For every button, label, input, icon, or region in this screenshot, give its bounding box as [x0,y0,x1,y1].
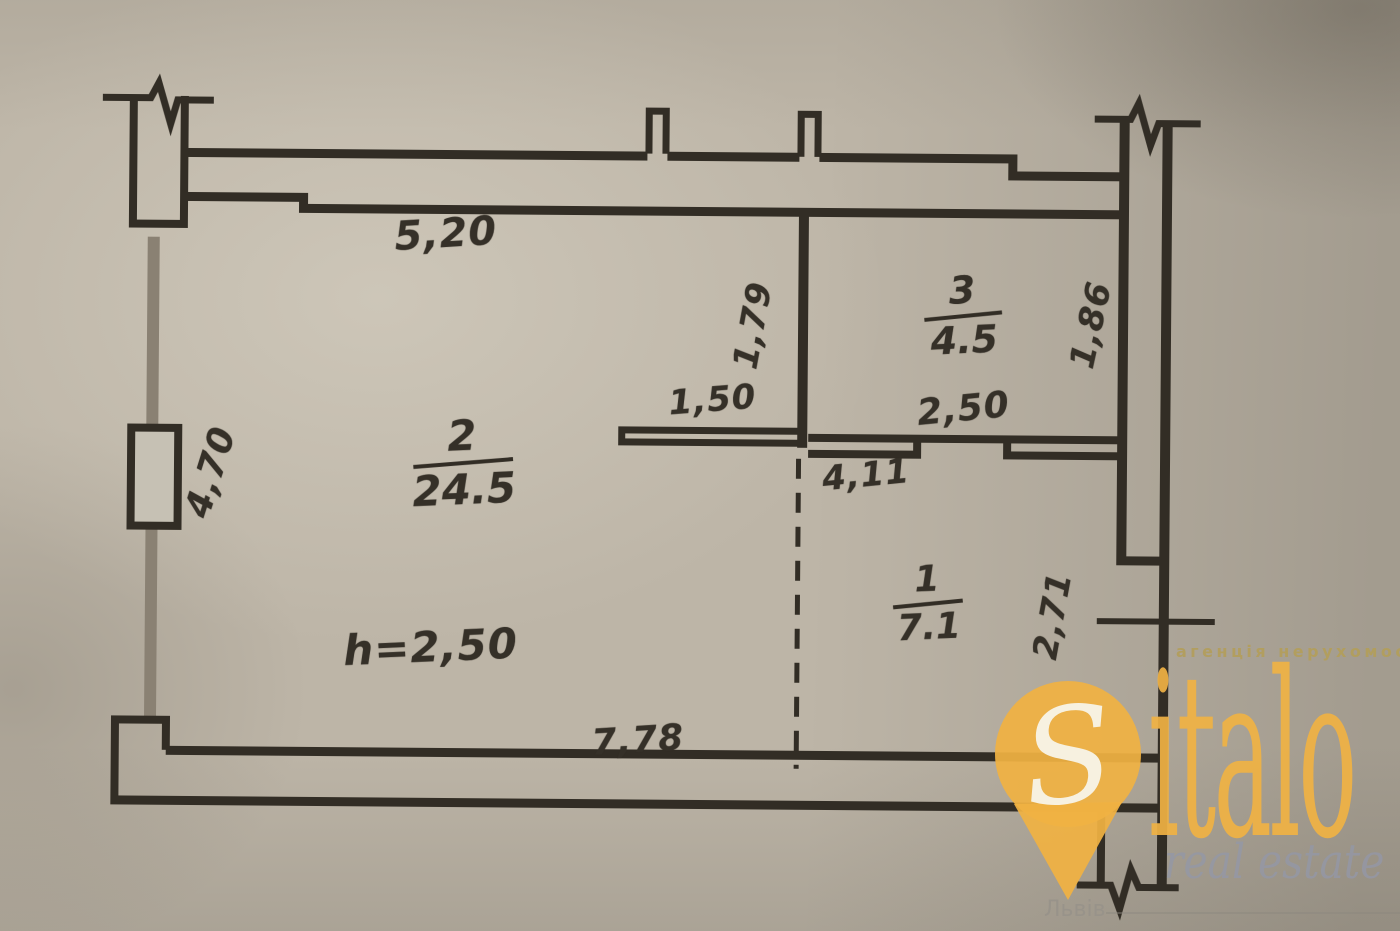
dim-corridor-width: 4,11 [820,451,911,499]
wall-top-outer-right [1010,171,1129,181]
door-jamb-right [1003,435,1011,459]
room-label-1: 1 7.1 [891,559,965,648]
wall-break-symbol-top-left [101,79,219,132]
wall-bottom-left-outer [110,715,119,803]
dim-shelf-width: 1,50 [667,377,758,424]
room-3-area: 4.5 [924,319,1004,362]
watermark-brand-initial: S [1015,676,1121,838]
room-1-number: 1 [891,559,963,600]
scanned-floor-plan-photo: 5,20 1,50 2,50 4,11 7,78 h=2,50 1,79 1,8… [0,0,1400,931]
wall-top-outer-a [185,148,647,161]
watermark-underline [1106,912,1400,914]
room-label-3: 3 4.5 [922,269,1004,362]
wall-break-symbol-top-right [1092,99,1204,152]
dim-left-height: 4,70 [177,422,244,523]
wall-right-inner [1116,121,1129,565]
wall-tick-1 [645,108,669,154]
room-2-area: 24.5 [411,466,516,515]
wall-top-inner-a [185,192,307,202]
dashed-zone-line [794,459,801,769]
dim-right-lower-height: 2,71 [1025,569,1080,663]
room-label-2: 2 24.5 [409,412,517,515]
window-left [126,424,182,530]
wall-top-outer-c [819,153,1014,164]
dim-bottom-width: 7,78 [590,717,685,764]
wall-room3-bottom-upper [808,434,1120,444]
ceiling-height-note: h=2,50 [342,619,519,676]
room-1-area: 7.1 [893,607,965,648]
room-3-number: 3 [922,269,1002,312]
wall-room3-bottom-lower-right [1003,451,1120,460]
watermark-subtitle: real estate [1164,838,1384,886]
wall-tick-2 [797,111,821,157]
watermark-city: Львів [1044,897,1106,922]
wall-partition-rooms-2-3 [797,208,809,448]
wall-top-outer-b [667,152,799,162]
map-pin-icon: S [988,676,1150,916]
dim-room3-width: 2,50 [915,384,1011,434]
half-wall-shelf [618,426,800,446]
dim-partition-height: 1,79 [725,279,780,373]
dim-top-width: 5,20 [393,208,498,260]
dim-room3-depth: 1,86 [1062,278,1120,372]
room-2-number: 2 [409,412,514,461]
door-jamb-left [913,435,921,459]
